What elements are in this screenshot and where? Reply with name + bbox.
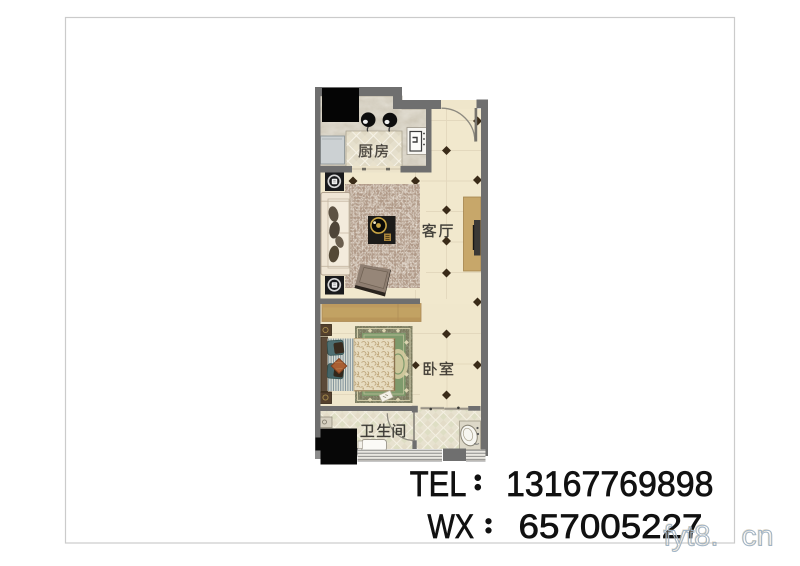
- svg-text:WX: WX: [428, 508, 475, 546]
- svg-text:cn: cn: [742, 521, 774, 553]
- svg-text:fyt8.: fyt8.: [664, 521, 719, 553]
- svg-text:13167769898: 13167769898: [506, 464, 714, 504]
- svg-text:TEL: TEL: [410, 464, 467, 504]
